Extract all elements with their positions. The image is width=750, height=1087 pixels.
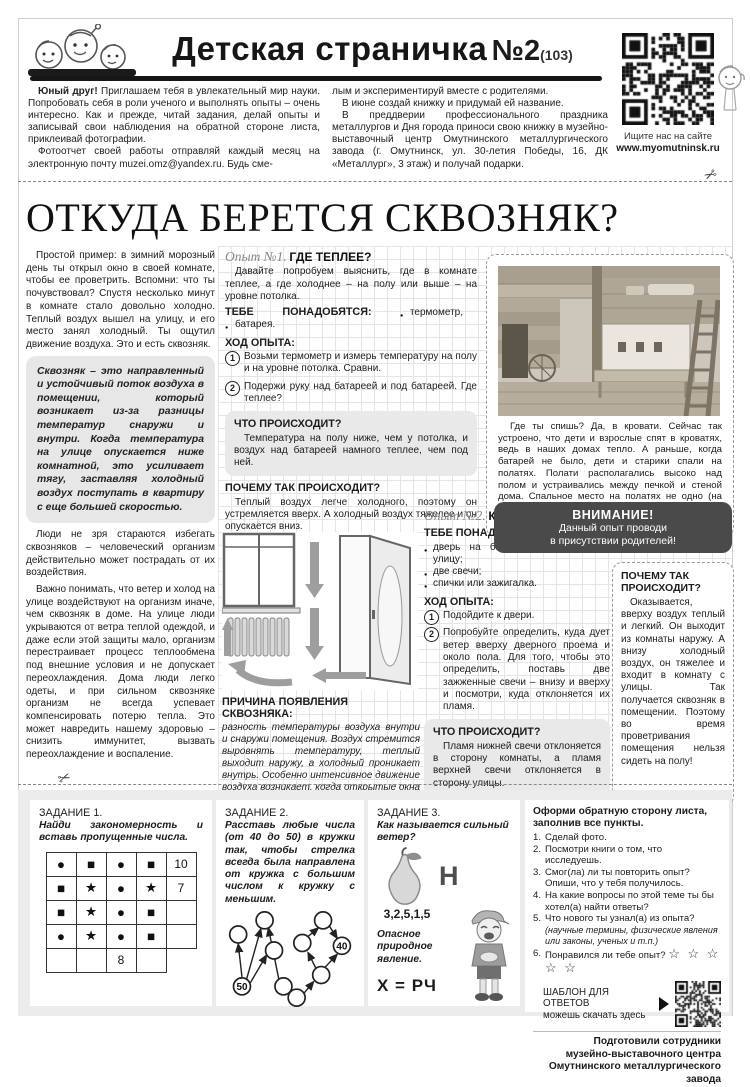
experiment-1-intro: Давайте попробуем выяснить, где в комнат… (225, 266, 477, 303)
article-left-column: Простой пример: в зимний морозный день т… (26, 250, 215, 766)
article-paragraph: Важно понимать, что ветер и холод на ули… (26, 584, 215, 762)
checklist-item: 4.На какие вопросы по этой теме ты бы хо… (533, 890, 721, 913)
why-happens-box: ПОЧЕМУ ТАК ПРОИСХОДИТ? Оказывается, ввер… (612, 562, 734, 806)
credits: Подготовили сотрудники музейно-выставочн… (533, 1031, 721, 1086)
girl-doodle (716, 58, 746, 124)
need-row: ТЕБЕ ПОНАДОБЯТСЯ: термометр, батарея. (225, 306, 477, 332)
task-2-text: Расставь любые числа (от 40 до 50) в кру… (225, 820, 355, 906)
cause-title: ПРИЧИНА ПОЯВЛЕНИЯ СКВОЗНЯКА: (222, 696, 420, 720)
cut-line-top (18, 181, 732, 182)
step-number-icon: 1 (225, 351, 240, 366)
task-2-card: ЗАДАНИЕ 2. Расставь любые числа (от 40 д… (216, 800, 364, 1006)
rebus-numbers: 3,2,5,1,5 (377, 907, 437, 921)
site-qr-code (622, 33, 714, 125)
task-1-card: ЗАДАНИЕ 1. Найди закономерность и вставь… (30, 800, 212, 1006)
masthead-underline (30, 76, 602, 81)
checklist-item: 2.Посмотри книги о том, что исследуешь. (533, 844, 721, 867)
photo-box: Где ты спишь? Да, в кровати. Сейчас так … (486, 254, 734, 537)
intro-column-1: Юный друг! Приглашаем тебя в увлекательн… (28, 86, 320, 171)
experiment-2: Опыт №2. КУДА ДУЕТ ВЕТЕР? ТЕБЕ ПОНАДОБЯТ… (424, 510, 610, 803)
template-row: ШАБЛОН ДЛЯ ОТВЕТОВможешь скачать здесь (543, 981, 721, 1027)
steps-label: ХОД ОПЫТА: (424, 596, 610, 608)
task-3-label: ЗАДАНИЕ 3. (377, 807, 511, 819)
article-headline: ОТКУДА БЕРЕТСЯ СКВОЗНЯК? (26, 194, 726, 241)
rebus-row: Н (377, 847, 511, 907)
qr-caption-line2: www.myomutninsk.ru (600, 143, 736, 154)
step-1: 1 Подойдите к двери. (424, 610, 610, 622)
checklist-item: 6.Понравился ли тебе опыт? ☆ ☆ ☆ ☆ ☆ (533, 948, 721, 975)
checklist-item: 3.Смог(ла) ли ты повторить опыт? Опиши, … (533, 867, 721, 890)
step-2: 2 Попробуйте определить, куда дует ветер… (424, 627, 610, 713)
steps-label: ХОД ОПЫТА: (225, 337, 477, 349)
polati-photo (498, 266, 720, 416)
step-number-icon: 2 (225, 381, 240, 396)
pear-icon (377, 847, 425, 907)
attention-title: ВНИМАНИЕ! (500, 508, 726, 522)
checklist-item: 5.Что нового ты узнал(а) из опыта? (науч… (533, 913, 721, 948)
intro-paragraph: Фотоотчет своей работы отправляй каждый … (28, 146, 320, 170)
laughing-boy-illustration (462, 907, 516, 1003)
experiment-1-label: Опыт №1. (225, 249, 287, 264)
task-1-text: Найди закономерность и вставь пропущенны… (39, 820, 203, 845)
task-2-graph: 50 40 (225, 909, 357, 1009)
cut-line-bottom (18, 784, 732, 785)
graph-node-40: 40 (336, 942, 347, 953)
experiment-2-label: Опыт №2. (424, 508, 486, 523)
checklist-item-note: (научные термины, физические явления или… (545, 925, 718, 947)
need-item: спички или зажигалка. (424, 578, 610, 590)
task-2-label: ЗАДАНИЕ 2. (225, 807, 355, 819)
task-3-card: ЗАДАНИЕ 3. Как называется сильный ветер?… (368, 800, 520, 1006)
need-item: термометр, (400, 307, 463, 318)
need-item: батарея. (225, 319, 275, 330)
answers-qr-code (675, 981, 721, 1027)
tasks-strip: ЗАДАНИЕ 1. Найди закономерность и вставь… (18, 790, 732, 1016)
attention-text: Данный опыт проводи в присутствии родите… (500, 522, 726, 547)
qr-caption-line1: Ищите нас на сайте (600, 131, 736, 142)
intro-paragraph: В июне создай книжку и придумай ей назва… (332, 98, 608, 110)
experiment-1-title: ГДЕ ТЕПЛЕЕ? (289, 250, 371, 264)
intro-paragraph: Юный друг! Приглашаем тебя в увлекательн… (28, 86, 320, 146)
draft-scheme-illustration (222, 532, 418, 690)
task-3-hint: Опасное природное явление. (377, 929, 457, 967)
task-1-label: ЗАДАНИЕ 1. (39, 807, 203, 819)
experiment-1: Опыт №1. ГДЕ ТЕПЛЕЕ? Давайте попробуем в… (225, 251, 477, 534)
step-number-icon: 1 (424, 610, 439, 625)
kids-doodle (28, 24, 136, 82)
intro-paragraph: лым и экспериментируй вместе с родителям… (332, 86, 608, 98)
task-1-grid: ●■●■10 ■★●★7 ■★●■ ●★●■ 8 (46, 852, 197, 973)
what-happens-box: ЧТО ПРОИСХОДИТ? Температура на полу ниже… (225, 411, 477, 476)
need-label: ТЕБЕ ПОНАДОБЯТСЯ: (225, 306, 372, 318)
checklist-item: 1.Сделай фото. (533, 832, 721, 844)
issue-total: (103) (540, 47, 573, 63)
task-3-question: Как называется сильный ветер? (377, 820, 511, 845)
experiment-1-heading: Опыт №1. ГДЕ ТЕПЛЕЕ? (225, 251, 477, 265)
step-1: 1 Возьми термометр и измерь температуру … (225, 351, 477, 376)
intro-column-2: лым и экспериментируй вместе с родителям… (332, 86, 608, 171)
graph-node-50: 50 (236, 982, 247, 993)
masthead: Детская страничка №2(103) (140, 30, 605, 68)
article-paragraph: Люди не зря стараются избегать сквозняко… (26, 529, 215, 580)
arrow-right-icon (659, 997, 669, 1011)
step-number-icon: 2 (424, 627, 439, 642)
intro-paragraph: В преддверии профессионального праздника… (332, 110, 608, 170)
page-title: Детская страничка (172, 30, 487, 67)
issue-number: №2 (492, 35, 540, 67)
rebus-letter: Н (439, 861, 459, 892)
need-item: две свечи; (424, 566, 610, 578)
attention-box: ВНИМАНИЕ! Данный опыт проводи в присутст… (494, 502, 732, 553)
article-paragraph: Простой пример: в зимний морозный день т… (26, 250, 215, 352)
definition-box: Сквозняк – это направленный и устойчивый… (26, 356, 215, 524)
checklist-title: Оформи обратную сторону листа, заполнив … (533, 806, 721, 830)
checklist-card: Оформи обратную сторону листа, заполнив … (525, 800, 729, 1012)
what-happens-box: ЧТО ПРОИСХОДИТ? Пламя нижней свечи откло… (424, 719, 610, 796)
step-2: 2 Подержи руку над батареей и под батаре… (225, 381, 477, 406)
